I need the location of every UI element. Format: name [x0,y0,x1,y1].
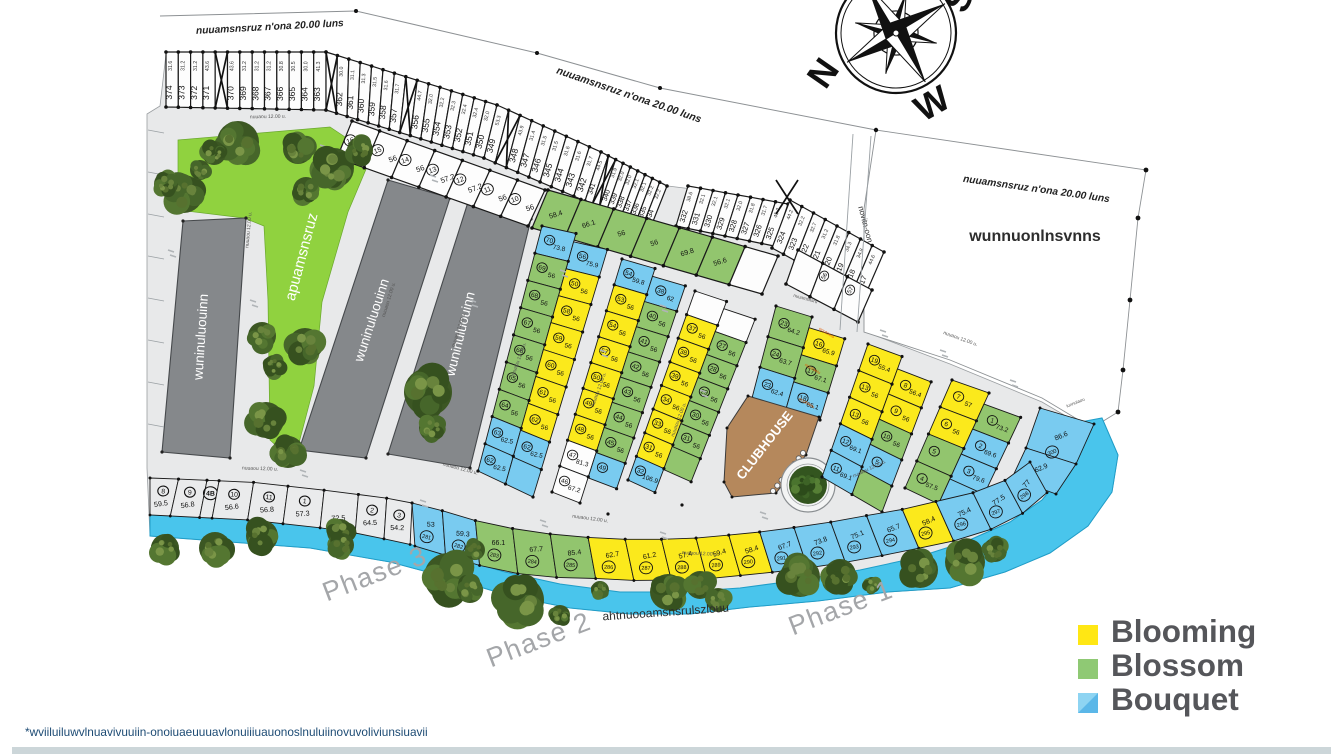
svg-text:57.3: 57.3 [295,509,310,519]
svg-text:287: 287 [641,566,650,572]
svg-text:361: 361 [345,95,356,110]
svg-text:66.1: 66.1 [492,540,506,547]
svg-text:43.6: 43.6 [230,61,236,71]
svg-text:362: 362 [334,92,344,107]
svg-text:53: 53 [427,522,435,529]
svg-text:366: 366 [275,87,285,101]
svg-text:358: 358 [377,105,388,120]
svg-text:Blooming: Blooming [1111,613,1256,649]
svg-text:30.8: 30.8 [279,61,285,71]
svg-text:59.5: 59.5 [153,498,168,509]
svg-text:9: 9 [188,490,192,497]
svg-text:356: 356 [409,114,421,130]
svg-text:64.5: 64.5 [363,518,377,528]
svg-text:10: 10 [230,492,238,499]
svg-text:363: 363 [312,87,322,101]
svg-text:290: 290 [744,559,754,566]
svg-text:355: 355 [420,117,432,133]
svg-text:370: 370 [226,86,236,100]
svg-text:31.1: 31.1 [350,70,356,80]
svg-text:59.3: 59.3 [456,530,470,538]
svg-text:31.2: 31.2 [193,61,199,71]
svg-text:54.2: 54.2 [390,523,404,532]
svg-text:30.0: 30.0 [304,61,310,71]
svg-text:56.8: 56.8 [260,505,275,515]
svg-text:372: 372 [189,85,199,99]
svg-text:67.7: 67.7 [529,546,543,554]
svg-text:289: 289 [711,562,721,569]
svg-text:369: 369 [238,86,248,100]
svg-text:285: 285 [566,562,576,569]
svg-text:288: 288 [677,565,686,571]
svg-text:371: 371 [201,86,211,100]
svg-text:30.0: 30.0 [339,66,345,76]
svg-text:30.5: 30.5 [291,61,297,71]
svg-text:31.3: 31.3 [361,73,368,84]
svg-text:31.5: 31.5 [372,77,379,88]
svg-text:56.6: 56.6 [224,501,239,512]
svg-text:4B: 4B [206,490,215,497]
svg-text:374: 374 [164,85,174,99]
svg-text:43.6: 43.6 [205,61,211,71]
svg-text:56.8: 56.8 [180,499,195,510]
svg-text:31.7: 31.7 [394,83,401,94]
svg-text:11: 11 [265,494,273,502]
svg-text:*wviiluiluwvlnuavivuuiin-onoiu: *wviiluiluwvlnuavivuuiin-onoiuaeuuuavlon… [25,725,428,739]
svg-text:nuuaou 12.00 u.: nuuaou 12.00 u. [250,114,286,121]
svg-text:364: 364 [300,87,310,101]
svg-text:Bouquet: Bouquet [1111,681,1239,717]
svg-text:31.2: 31.2 [267,61,273,71]
svg-text:365: 365 [287,87,297,101]
svg-text:31.6: 31.6 [168,61,174,71]
svg-text:wunnuonlnsvnns: wunnuonlnsvnns [968,228,1101,245]
svg-text:8: 8 [161,488,165,495]
svg-text:286: 286 [604,565,613,571]
svg-text:373: 373 [177,85,187,99]
svg-text:368: 368 [250,86,260,100]
svg-text:360: 360 [355,98,366,113]
svg-text:359: 359 [366,101,377,116]
svg-text:31.2: 31.2 [181,61,187,71]
svg-text:41.3: 41.3 [316,61,322,71]
svg-text:31.6: 31.6 [383,80,390,91]
svg-text:367: 367 [263,86,273,100]
svg-text:31.2: 31.2 [242,61,248,71]
svg-text:nuuaou 12.00 u.: nuuaou 12.00 u. [242,465,278,472]
svg-text:357: 357 [388,108,399,123]
svg-text:Blossom: Blossom [1111,647,1244,683]
svg-text:31.2: 31.2 [254,61,260,71]
